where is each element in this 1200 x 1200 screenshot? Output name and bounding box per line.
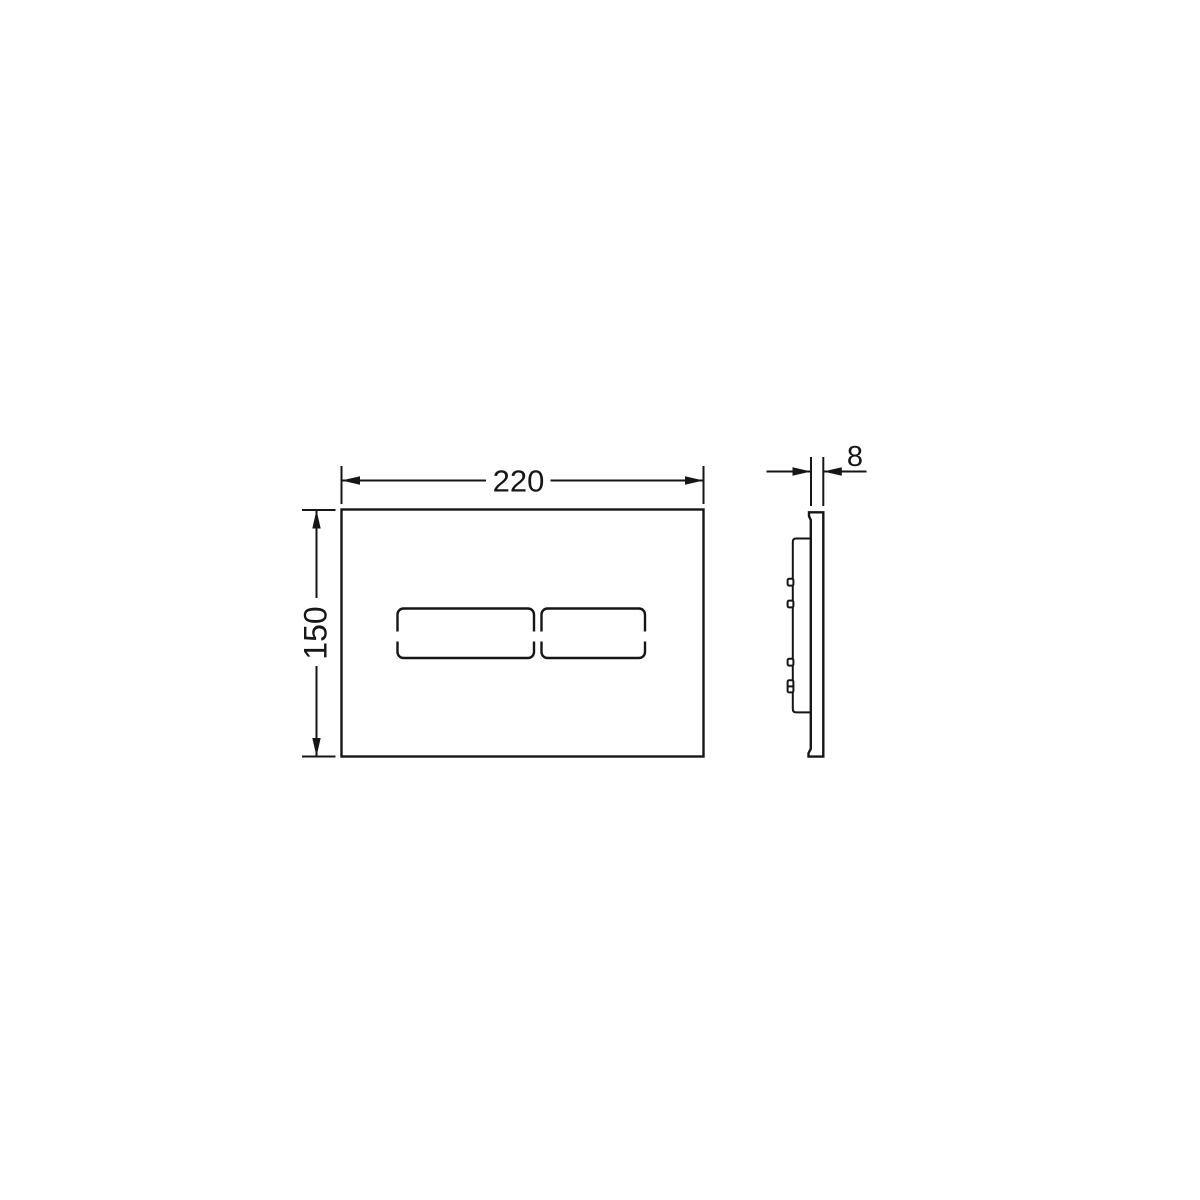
drawing-canvas: 220 150 — [0, 0, 1200, 1200]
height-dimension: 150 — [298, 510, 336, 757]
arrow-down-icon — [312, 738, 320, 757]
height-dimension-value: 150 — [298, 606, 334, 659]
mounting-clip — [788, 659, 794, 666]
plate-profile-outline — [809, 512, 824, 756]
arrow-left-icon — [823, 467, 842, 475]
arrow-right-icon — [793, 467, 812, 475]
mounting-frame-outline — [793, 539, 811, 713]
mounting-clip — [788, 601, 794, 608]
width-dimension: 220 — [342, 464, 704, 505]
plate-front-outline — [342, 510, 704, 757]
arrow-left-icon — [342, 476, 361, 484]
arrow-up-icon — [312, 510, 320, 529]
front-view — [342, 510, 704, 757]
depth-dimension-value: 8 — [847, 441, 863, 473]
arrow-right-icon — [685, 476, 704, 484]
depth-dimension: 8 — [767, 441, 867, 506]
side-view — [788, 512, 824, 756]
mounting-clip — [788, 579, 794, 586]
flush-plate-technical-drawing: 220 150 — [0, 0, 1200, 1200]
width-dimension-value: 220 — [493, 464, 545, 499]
